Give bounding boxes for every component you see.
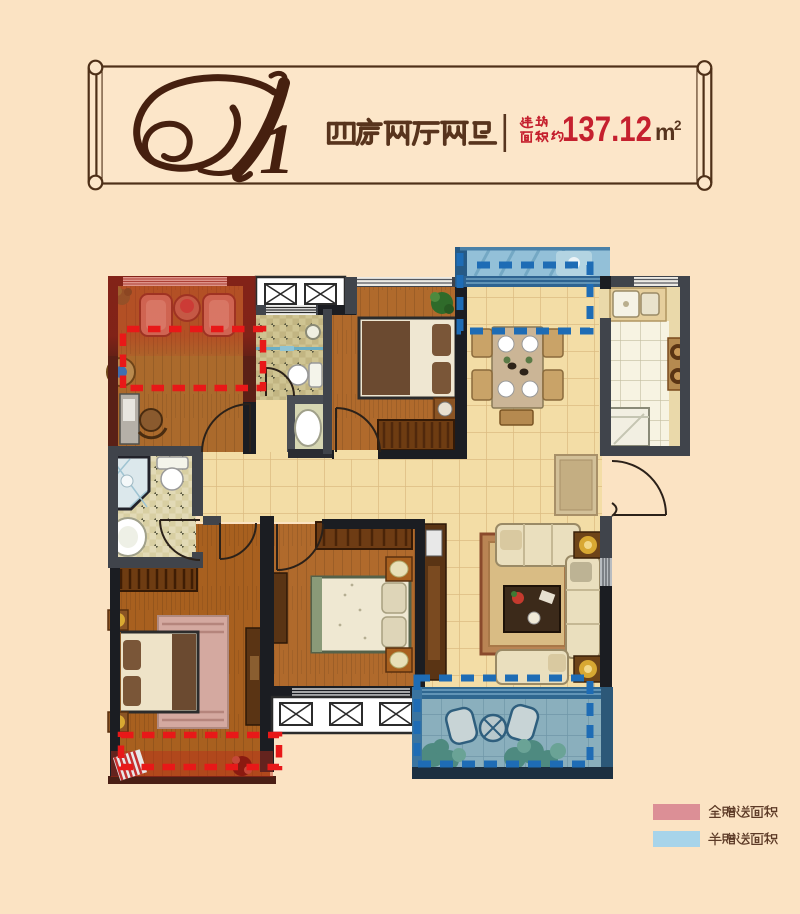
- svg-text:137.12: 137.12: [562, 109, 652, 149]
- svg-text:1: 1: [259, 109, 295, 189]
- svg-text:m: m: [655, 119, 675, 145]
- svg-text:2: 2: [674, 118, 682, 133]
